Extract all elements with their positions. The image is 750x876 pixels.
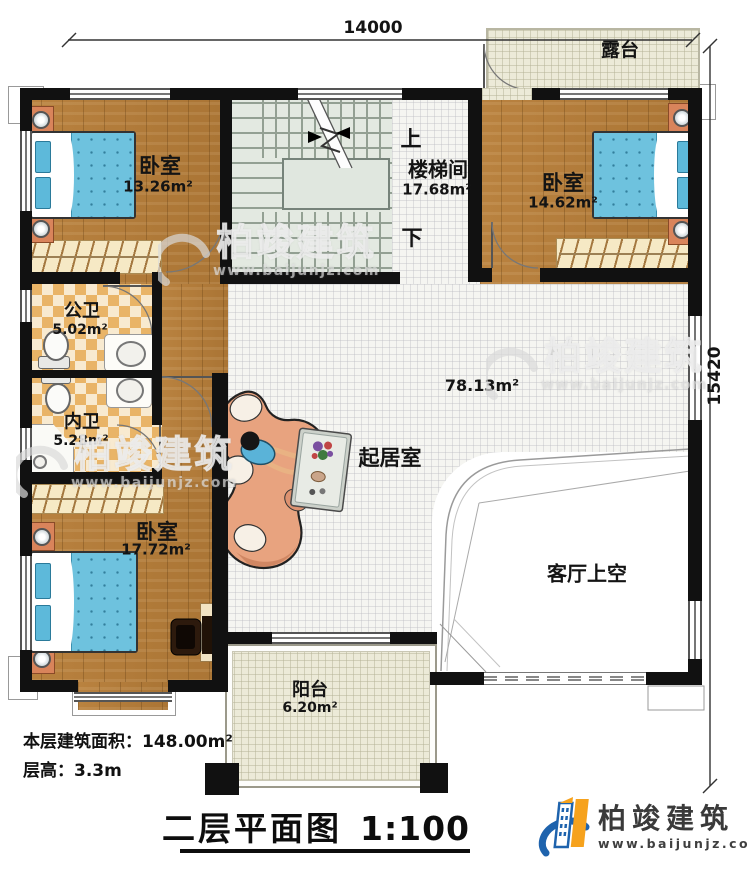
room-label-living-room: 起居室 bbox=[359, 446, 422, 470]
wall-void-bottom bbox=[430, 672, 484, 685]
room-label-public-bath: 公卫 bbox=[64, 302, 100, 323]
room-area-bedroom-bottom-left: 17.72m² bbox=[121, 541, 191, 558]
wall-bedroom3-bottom bbox=[20, 680, 78, 692]
plan-title: 二层平面图1:100 bbox=[162, 802, 470, 850]
wall-void-bottom bbox=[646, 672, 702, 685]
coffee-table bbox=[290, 428, 351, 512]
wall-bath-divider bbox=[20, 370, 162, 378]
wall-living-bottom bbox=[390, 632, 437, 644]
dimension-width: 14000 bbox=[343, 19, 402, 39]
room-area-bedroom-top-left: 13.26m² bbox=[123, 178, 193, 195]
room-label-bedroom-top-right: 卧室 bbox=[542, 171, 584, 195]
room-label-living-void: 客厅上空 bbox=[547, 563, 627, 586]
brand-url: www.baijunjz.com bbox=[598, 836, 750, 851]
room-label-bedroom-top-left: 卧室 bbox=[139, 154, 181, 178]
room-label-balcony: 阳台 bbox=[292, 681, 328, 702]
void-ledge bbox=[648, 686, 704, 710]
window bbox=[20, 290, 32, 322]
wall-corridor-east bbox=[212, 373, 228, 692]
window bbox=[20, 556, 32, 650]
terrace-door-opening bbox=[482, 88, 532, 100]
void-window-dashed bbox=[484, 672, 646, 685]
dimension-height: 15420 bbox=[706, 346, 726, 405]
stair-down-label: 下 bbox=[402, 226, 423, 250]
column bbox=[205, 763, 239, 795]
wall-bath-east bbox=[152, 284, 162, 425]
wall-band bbox=[20, 272, 120, 284]
room-label-private-bath: 内卫 bbox=[64, 413, 100, 434]
window bbox=[688, 601, 702, 659]
room-area-living-room: 78.13m² bbox=[445, 377, 519, 395]
window bbox=[298, 88, 402, 100]
armchair bbox=[171, 619, 201, 655]
floor-plan-canvas: 14000 15420 卧室 13.26m² 上 楼梯间 17.68m² 下 卧… bbox=[0, 0, 750, 876]
room-label-stairwell: 楼梯间 bbox=[408, 159, 468, 182]
title-underline bbox=[180, 849, 470, 853]
brand-logo: 柏竣建筑 www.baijunjz.com bbox=[536, 797, 750, 859]
stair-break-line bbox=[306, 96, 352, 168]
column bbox=[420, 763, 448, 793]
room-area-balcony: 6.20m² bbox=[282, 700, 337, 716]
room-area-private-bath: 5.28m² bbox=[53, 433, 108, 449]
wall-bedroom2-bottom bbox=[468, 268, 492, 282]
void-boundary bbox=[440, 449, 690, 672]
window bbox=[20, 428, 32, 460]
room-label-terrace: 露台 bbox=[601, 40, 639, 62]
wall-bedroom3-bottom bbox=[168, 680, 228, 692]
window bbox=[20, 131, 32, 211]
plan-title-text: 二层平面图 bbox=[162, 809, 342, 848]
wall-band bbox=[152, 272, 162, 284]
brand-building-icon bbox=[536, 797, 592, 859]
tv-icon bbox=[202, 616, 212, 654]
wall-stairs-bottom bbox=[228, 272, 400, 284]
window bbox=[70, 88, 170, 100]
wall-bedroom3-top bbox=[20, 472, 162, 484]
brand-name: 柏竣建筑 bbox=[598, 805, 734, 833]
room-area-bedroom-top-right: 14.62m² bbox=[528, 194, 598, 211]
window bbox=[688, 316, 702, 420]
floor-height-note: 层高：3.3m bbox=[23, 756, 122, 781]
wall-bedroom2-bottom bbox=[540, 268, 702, 282]
bay-window bbox=[74, 692, 172, 702]
wall-bedroom1-stairs bbox=[220, 88, 232, 284]
room-area-public-bath: 5.02m² bbox=[52, 322, 107, 338]
wall-living-bottom bbox=[228, 632, 272, 644]
room-area-stairwell: 17.68m² bbox=[402, 181, 472, 198]
balcony-sliding-door bbox=[272, 632, 390, 644]
stair-up-label: 上 bbox=[401, 127, 422, 151]
floor-area-note: 本层建筑面积：148.00m² bbox=[23, 727, 233, 752]
window bbox=[560, 88, 668, 100]
plan-scale: 1:100 bbox=[360, 809, 470, 848]
